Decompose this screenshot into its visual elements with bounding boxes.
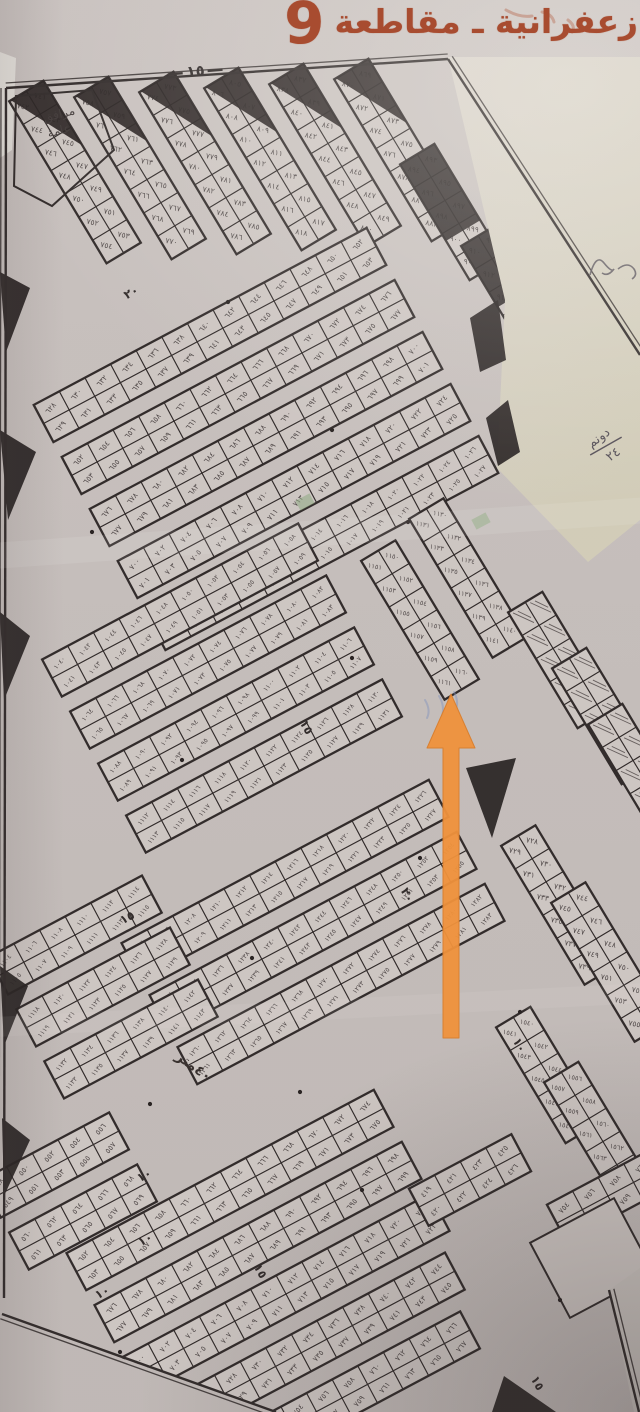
survey-dot xyxy=(250,956,254,960)
cadastral-map: ٧٤١٧٤٣٧٤٥٧٤٧٧٤٩٧٥١٧٥٣٧٤٢٧٤٤٧٤٦٧٤٨٧٥٠٧٥٢٧… xyxy=(0,0,640,1412)
survey-dot xyxy=(518,1010,522,1014)
label-dash xyxy=(168,73,183,74)
map-title: زعفرانية ـ مقاطعة 9 xyxy=(284,0,638,54)
survey-dot xyxy=(90,530,94,534)
survey-dot xyxy=(118,1350,122,1354)
survey-dot xyxy=(226,300,230,304)
label-dash xyxy=(208,70,223,71)
survey-dot xyxy=(350,656,354,660)
survey-dot xyxy=(558,1298,562,1302)
district-number: 9 xyxy=(284,0,324,52)
survey-dot xyxy=(298,1090,302,1094)
street-width-text: ١٥ xyxy=(186,61,206,81)
survey-dot xyxy=(148,1102,152,1106)
survey-dot xyxy=(180,758,184,762)
survey-dot xyxy=(330,428,334,432)
survey-dot xyxy=(360,1188,364,1192)
survey-dot xyxy=(418,856,422,860)
title-text: زعفرانية ـ مقاطعة xyxy=(334,0,638,54)
map-photo: ٧٤١٧٤٣٧٤٥٧٤٧٧٤٩٧٥١٧٥٣٧٤٢٧٤٤٧٤٦٧٤٨٧٥٠٧٥٢٧… xyxy=(0,0,640,1412)
